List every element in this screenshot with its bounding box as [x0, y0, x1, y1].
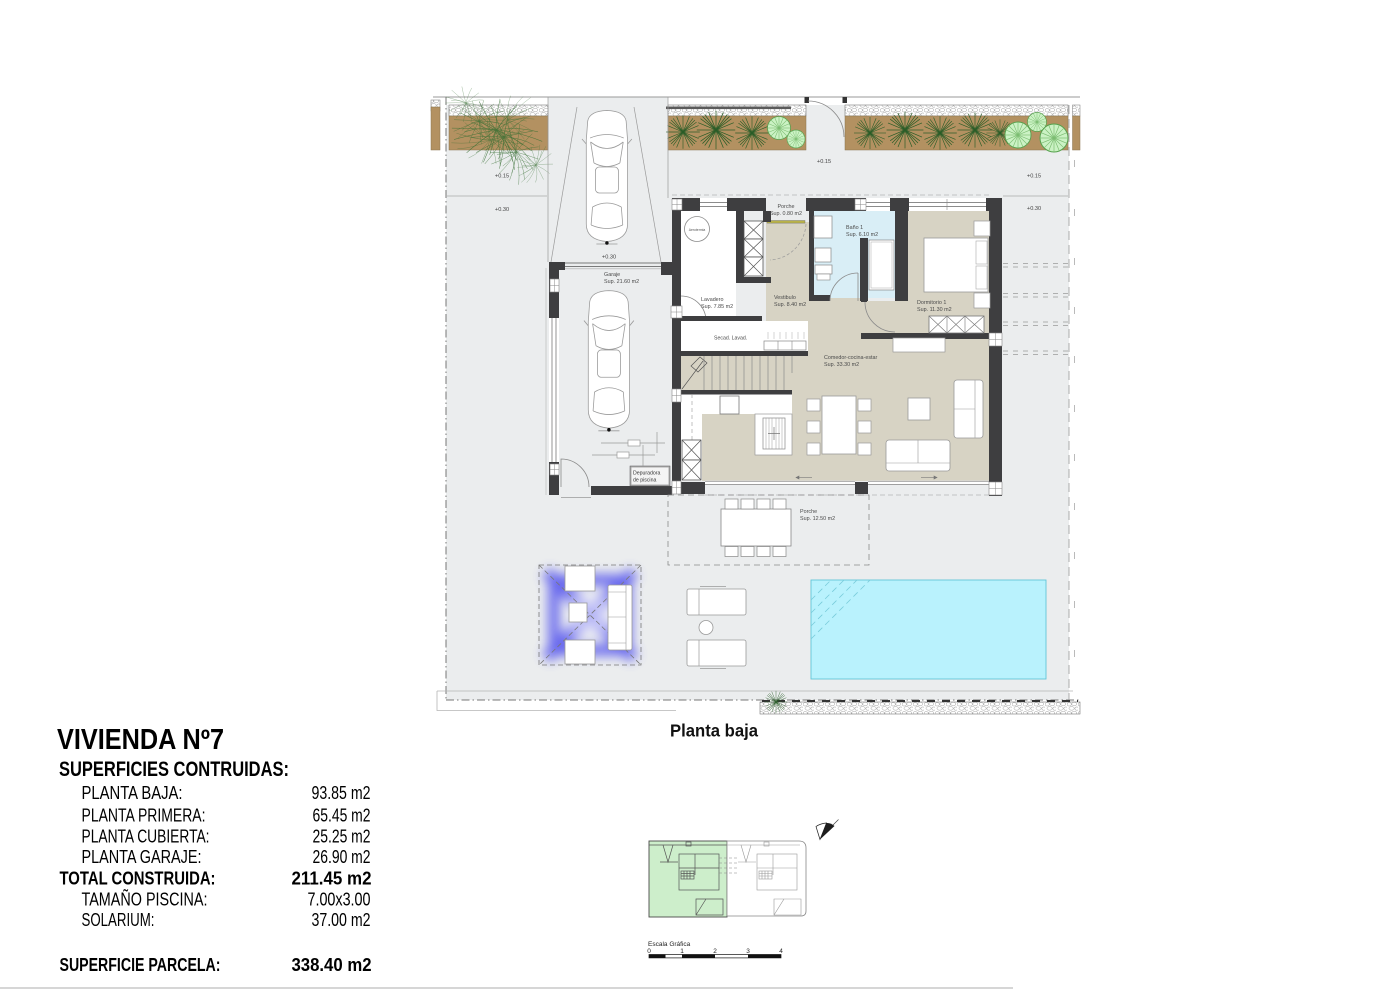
svg-text:+0.15: +0.15 — [817, 159, 831, 165]
svg-text:Planta baja: Planta baja — [670, 721, 758, 741]
svg-text:TOTAL CONSTRUIDA:: TOTAL CONSTRUIDA: — [60, 868, 216, 889]
svg-text:de piscina: de piscina — [633, 478, 656, 484]
svg-text:Aerotermia: Aerotermia — [689, 228, 706, 232]
svg-text:65.45 m2: 65.45 m2 — [313, 805, 371, 826]
svg-text:PLANTA BAJA:: PLANTA BAJA: — [82, 782, 183, 803]
svg-text:4: 4 — [779, 948, 783, 955]
svg-text:2: 2 — [713, 948, 717, 955]
svg-text:VIVIENDA Nº7: VIVIENDA Nº7 — [57, 724, 224, 756]
svg-text:Baño 1: Baño 1 — [846, 225, 863, 231]
svg-text:7.00x3.00: 7.00x3.00 — [308, 889, 371, 910]
svg-text:338.40 m2: 338.40 m2 — [292, 954, 372, 975]
svg-text:Sup. 6.10 m2: Sup. 6.10 m2 — [846, 232, 878, 238]
svg-text:Sup. 0.80 m2: Sup. 0.80 m2 — [770, 211, 802, 217]
svg-text:25.25 m2: 25.25 m2 — [313, 826, 371, 847]
svg-text:Dormitorio 1: Dormitorio 1 — [917, 300, 946, 306]
svg-text:1: 1 — [680, 948, 684, 955]
svg-text:+0.30: +0.30 — [602, 255, 616, 261]
svg-text:93.85 m2: 93.85 m2 — [312, 782, 371, 803]
svg-text:211.45 m2: 211.45 m2 — [292, 868, 372, 889]
svg-text:Sup. 33.30 m2: Sup. 33.30 m2 — [824, 362, 859, 368]
svg-text:Garaje: Garaje — [604, 272, 620, 278]
svg-text:Sup. 21.60 m2: Sup. 21.60 m2 — [604, 279, 639, 285]
svg-text:Lavadero: Lavadero — [701, 297, 723, 303]
svg-text:+0.30: +0.30 — [495, 207, 509, 213]
svg-text:SUPERFICIES CONTRUIDAS:: SUPERFICIES CONTRUIDAS: — [59, 757, 289, 781]
svg-text:SUPERFICIE PARCELA:: SUPERFICIE PARCELA: — [60, 954, 221, 975]
svg-text:PLANTA PRIMERA:: PLANTA PRIMERA: — [82, 805, 206, 826]
svg-text:0: 0 — [647, 948, 651, 955]
svg-text:3: 3 — [746, 948, 750, 955]
svg-text:Sup. 12.50 m2: Sup. 12.50 m2 — [800, 516, 835, 522]
svg-text:Escala Gráfica: Escala Gráfica — [648, 941, 691, 948]
svg-text:Depuradora: Depuradora — [633, 471, 661, 477]
svg-text:PLANTA GARAJE:: PLANTA GARAJE: — [82, 846, 202, 867]
svg-text:Comedor-cocina-estar: Comedor-cocina-estar — [824, 355, 878, 361]
svg-text:SOLARIUM:: SOLARIUM: — [82, 909, 155, 930]
svg-text:26.90 m2: 26.90 m2 — [313, 846, 371, 867]
svg-text:Secad. Lavad.: Secad. Lavad. — [714, 336, 747, 342]
svg-text:Sup. 8.40 m2: Sup. 8.40 m2 — [774, 302, 806, 308]
svg-text:+0.30: +0.30 — [1027, 206, 1041, 212]
svg-text:Sup. 11.30 m2: Sup. 11.30 m2 — [917, 307, 952, 313]
svg-text:PLANTA CUBIERTA:: PLANTA CUBIERTA: — [82, 826, 210, 847]
svg-text:+0.15: +0.15 — [1027, 174, 1041, 180]
svg-text:TAMAÑO PISCINA:: TAMAÑO PISCINA: — [82, 889, 208, 910]
svg-text:Porche: Porche — [777, 204, 794, 210]
svg-text:Porche: Porche — [800, 509, 817, 515]
svg-text:+0.15: +0.15 — [495, 174, 509, 180]
svg-text:Sup. 7.85 m2: Sup. 7.85 m2 — [701, 304, 733, 310]
svg-text:37.00 m2: 37.00 m2 — [312, 909, 371, 930]
svg-text:Vestibulo: Vestibulo — [774, 295, 796, 301]
